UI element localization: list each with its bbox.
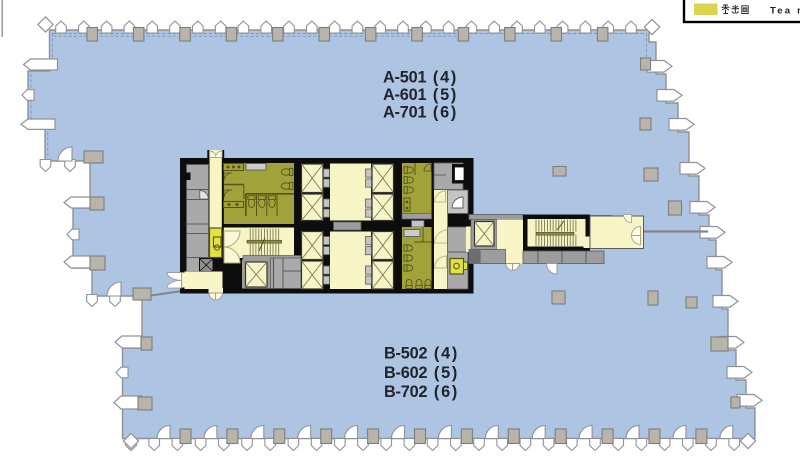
svg-text:A-601(5): A-601(5) [383,86,458,104]
svg-text:Tea ro: Tea ro [770,6,800,17]
svg-text:B-702(6): B-702(6) [384,383,459,401]
svg-text:A-701(6): A-701(6) [383,104,458,122]
svg-text:B-502(4): B-502(4) [384,345,459,363]
svg-text:A-501(4): A-501(4) [383,69,458,87]
svg-text:B-602(5): B-602(5) [384,364,459,382]
